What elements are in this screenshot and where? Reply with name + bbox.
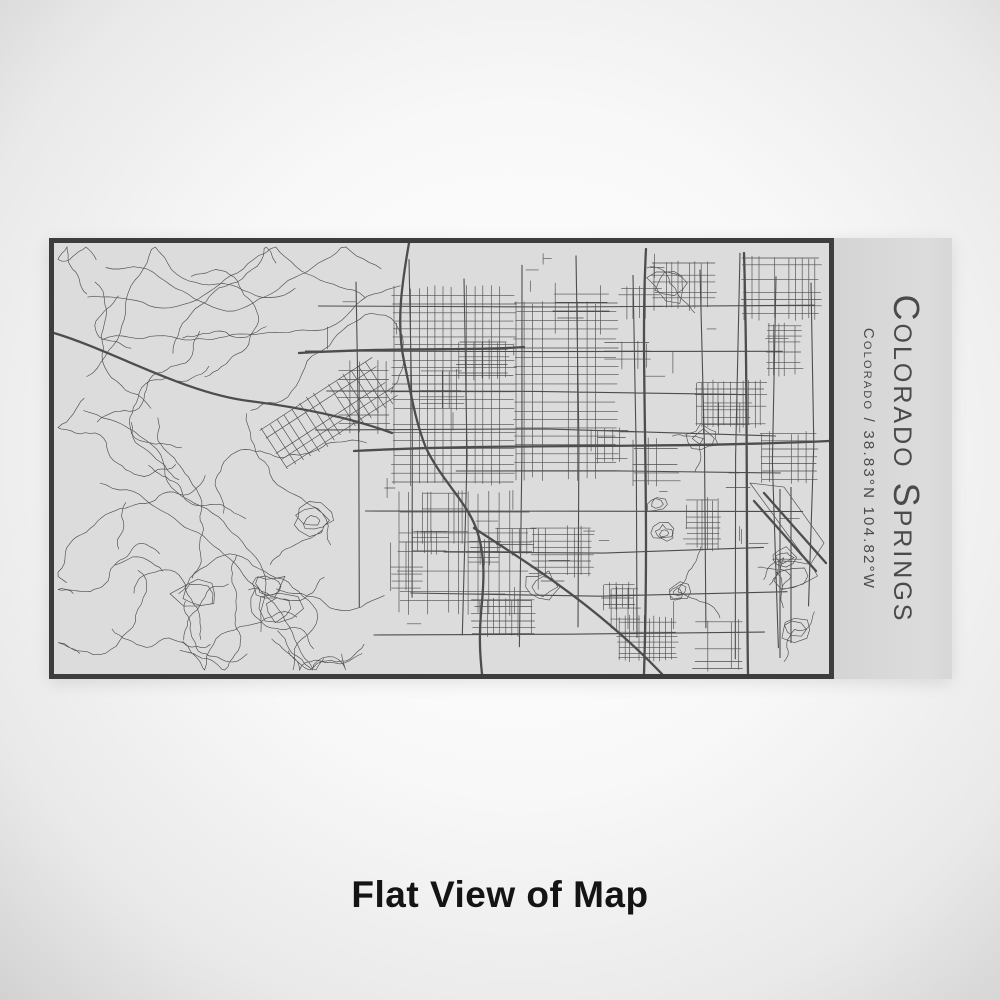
caption-flat-view: Flat View of Map xyxy=(0,874,1000,916)
map-panel xyxy=(49,238,834,679)
engraving-flat-view: Colorado / 38.83°N 104.82°W Colorado Spr… xyxy=(49,238,952,679)
label-panel: Colorado / 38.83°N 104.82°W Colorado Spr… xyxy=(834,238,952,679)
map-coordinates-label: Colorado / 38.83°N 104.82°W xyxy=(861,327,876,589)
map-title-label: Colorado Springs xyxy=(888,294,924,623)
colorado-springs-street-map xyxy=(54,243,829,674)
